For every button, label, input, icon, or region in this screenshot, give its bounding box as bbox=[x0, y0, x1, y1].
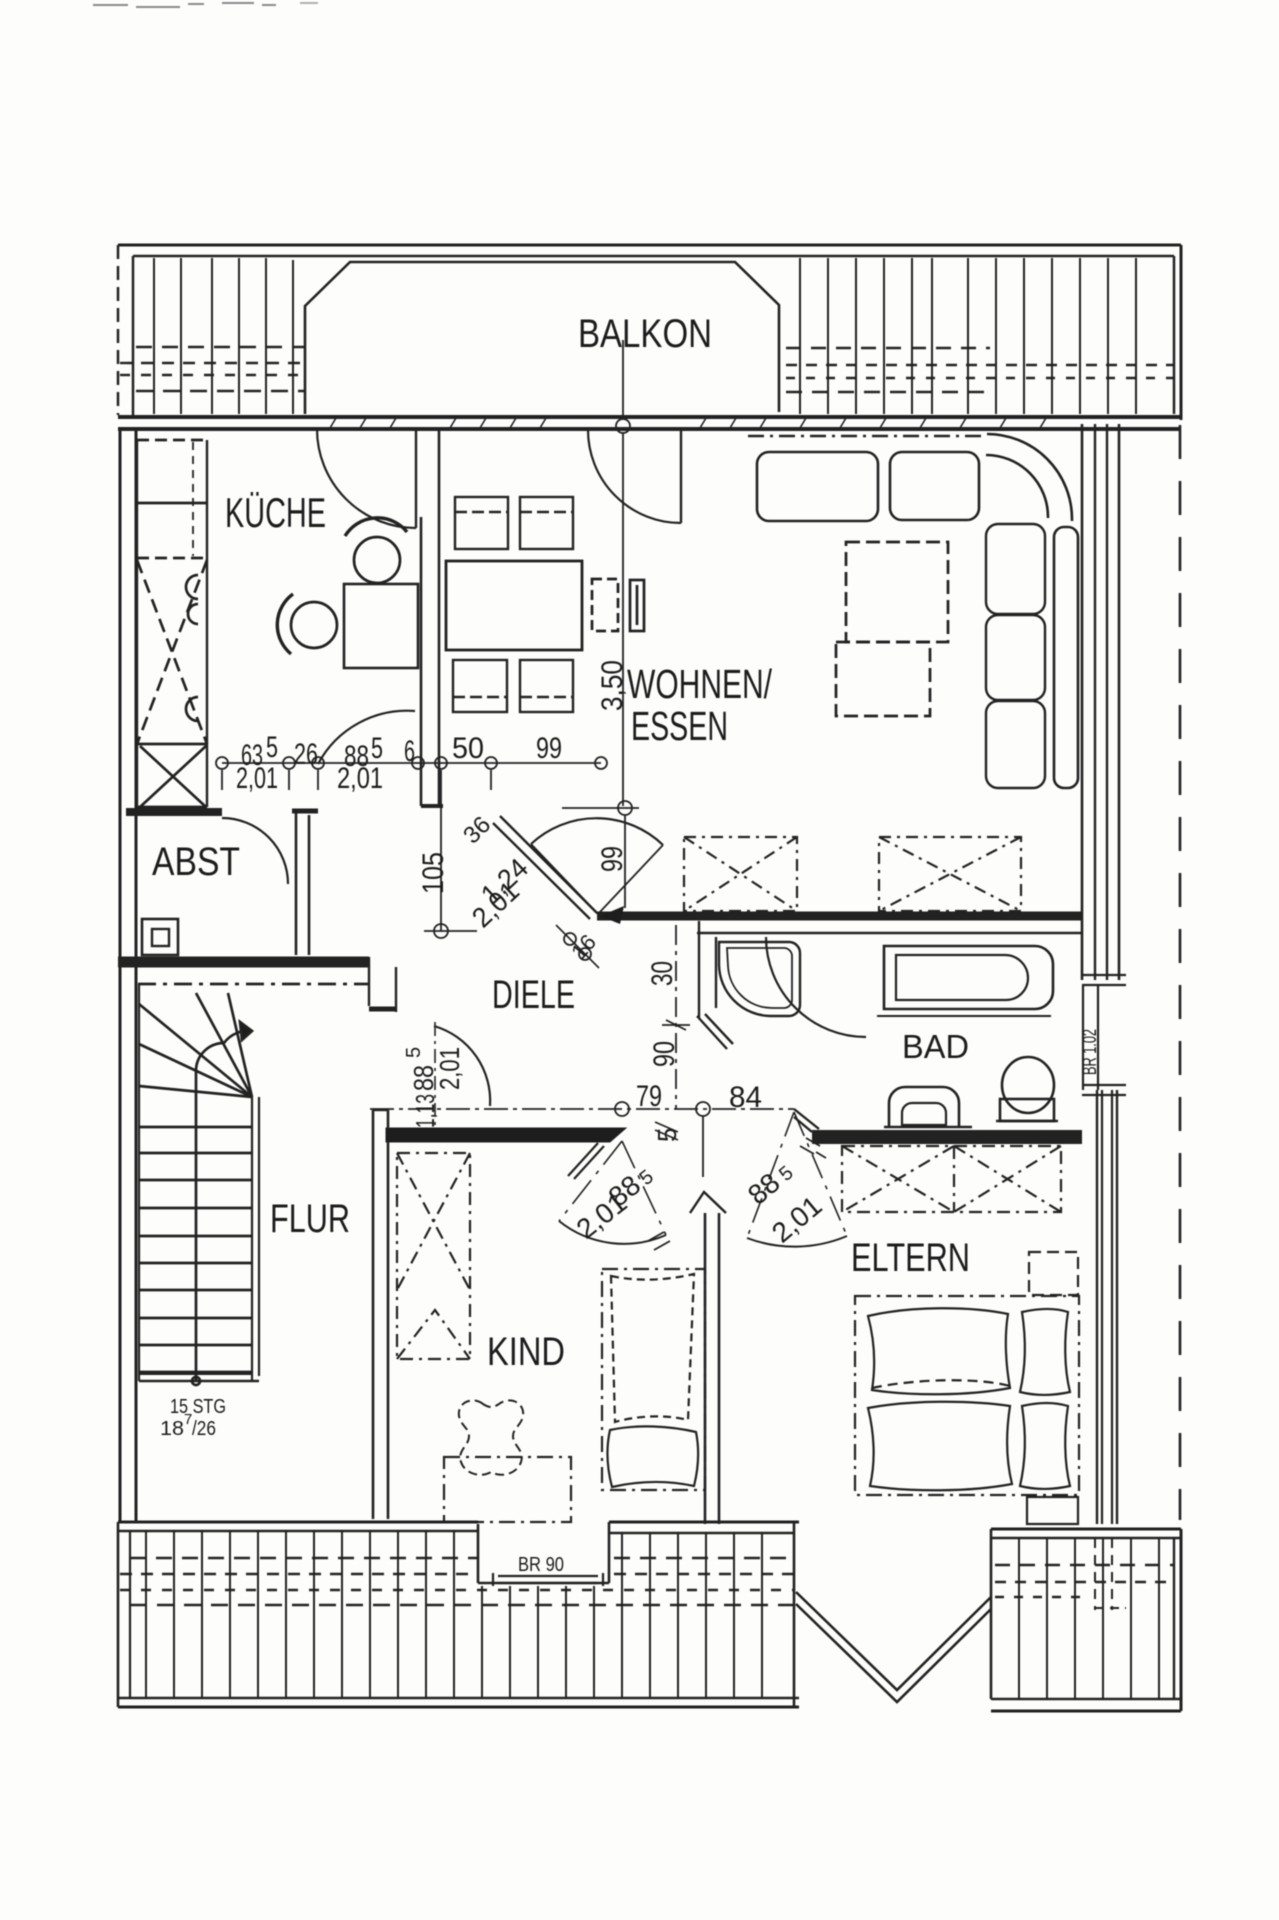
svg-text:FLUR: FLUR bbox=[270, 1197, 350, 1241]
svg-text:90: 90 bbox=[648, 1041, 681, 1067]
svg-text:WOHNEN/: WOHNEN/ bbox=[627, 661, 772, 707]
svg-text:105: 105 bbox=[417, 852, 450, 894]
svg-text:30: 30 bbox=[646, 961, 679, 986]
svg-text:BALKON: BALKON bbox=[578, 312, 712, 356]
svg-text:26: 26 bbox=[294, 738, 318, 771]
svg-text:BR 90: BR 90 bbox=[518, 1554, 564, 1576]
svg-text:ABST: ABST bbox=[152, 840, 240, 884]
svg-text:18: 18 bbox=[160, 1418, 184, 1440]
svg-text:36: 36 bbox=[458, 811, 496, 849]
svg-text:5: 5 bbox=[371, 732, 383, 765]
svg-text:ELTERN: ELTERN bbox=[851, 1236, 970, 1280]
svg-text:2,01: 2,01 bbox=[236, 762, 278, 795]
svg-text:KIND: KIND bbox=[487, 1330, 565, 1374]
svg-text:99: 99 bbox=[596, 846, 629, 872]
svg-text:2,01: 2,01 bbox=[337, 762, 383, 795]
svg-text:84: 84 bbox=[729, 1081, 762, 1114]
svg-text:KÜCHE: KÜCHE bbox=[225, 489, 326, 536]
svg-text:3,50: 3,50 bbox=[596, 660, 629, 711]
svg-text:/26: /26 bbox=[192, 1418, 216, 1440]
svg-text:5: 5 bbox=[403, 1047, 425, 1058]
svg-text:79: 79 bbox=[636, 1080, 662, 1113]
svg-text:99: 99 bbox=[536, 732, 562, 765]
svg-text:2,01: 2,01 bbox=[434, 1047, 465, 1090]
svg-text:50: 50 bbox=[452, 732, 484, 765]
svg-text:ESSEN: ESSEN bbox=[631, 703, 728, 749]
svg-text:BR 1.02: BR 1.02 bbox=[1080, 1029, 1101, 1075]
svg-text:5: 5 bbox=[266, 731, 278, 764]
svg-text:16: 16 bbox=[566, 929, 601, 964]
svg-text:1,13: 1,13 bbox=[410, 1094, 440, 1128]
svg-text:15 STG: 15 STG bbox=[170, 1396, 226, 1418]
svg-text:DIELE: DIELE bbox=[492, 973, 575, 1017]
svg-text:6: 6 bbox=[404, 735, 415, 768]
svg-text:BAD: BAD bbox=[902, 1028, 969, 1065]
